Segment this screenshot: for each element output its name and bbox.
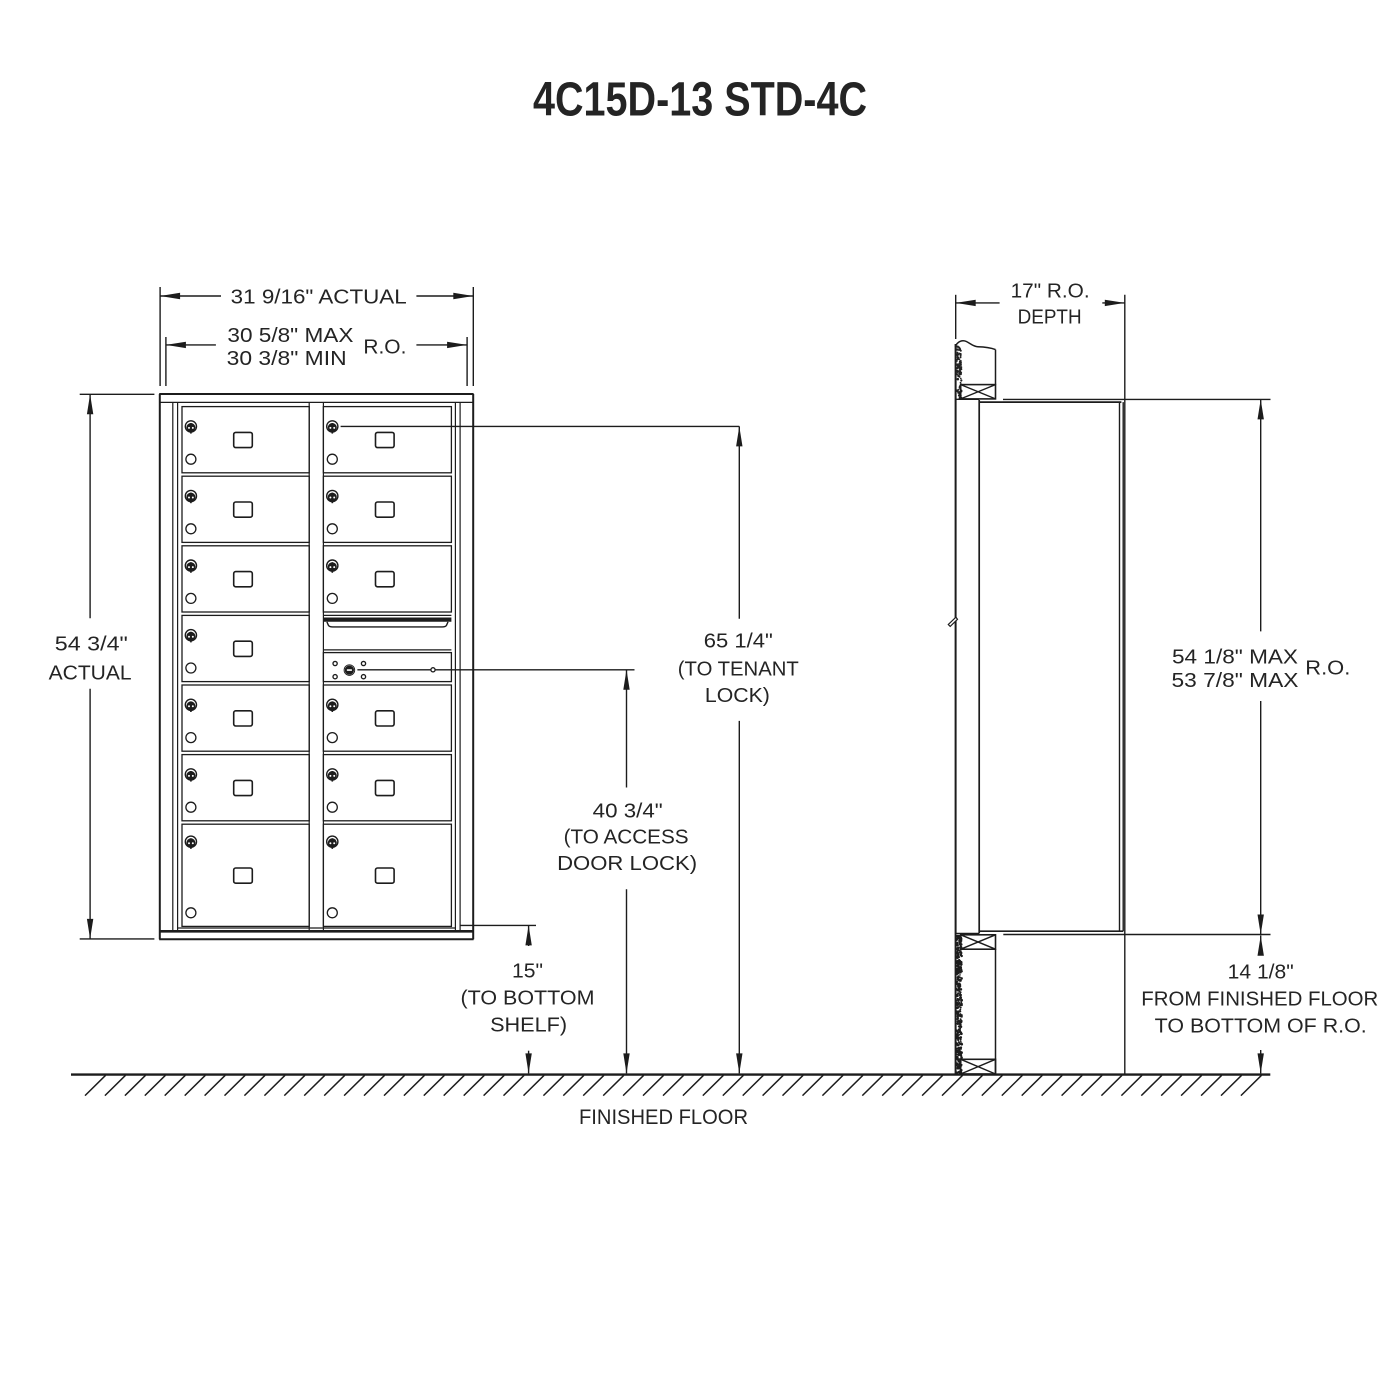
svg-text:30 3/8" MIN: 30 3/8" MIN [227,348,347,370]
svg-text:DEPTH: DEPTH [1018,307,1082,329]
svg-text:(TO BOTTOM: (TO BOTTOM [461,987,595,1009]
svg-text:30 5/8" MAX: 30 5/8" MAX [227,325,353,347]
svg-text:15": 15" [512,961,543,983]
svg-text:ACTUAL: ACTUAL [49,663,132,685]
svg-text:14 1/8": 14 1/8" [1228,962,1294,984]
svg-text:(TO TENANT: (TO TENANT [678,658,799,680]
svg-text:31 9/16" ACTUAL: 31 9/16" ACTUAL [231,286,407,308]
svg-text:TO BOTTOM OF R.O.: TO BOTTOM OF R.O. [1155,1015,1367,1037]
svg-text:4C15D-13 STD-4C: 4C15D-13 STD-4C [533,74,867,127]
svg-text:54 1/8" MAX: 54 1/8" MAX [1172,646,1298,668]
svg-text:FINISHED FLOOR: FINISHED FLOOR [579,1106,748,1129]
svg-text:53 7/8" MAX: 53 7/8" MAX [1172,670,1299,692]
svg-text:DOOR LOCK): DOOR LOCK) [557,853,697,875]
svg-text:R.O.: R.O. [1305,658,1350,680]
svg-text:65 1/4": 65 1/4" [704,630,773,652]
svg-text:SHELF): SHELF) [490,1015,567,1037]
svg-text:FROM FINISHED FLOOR: FROM FINISHED FLOOR [1141,989,1378,1011]
svg-text:LOCK): LOCK) [705,685,770,707]
svg-text:54 3/4": 54 3/4" [55,634,128,656]
svg-text:R.O.: R.O. [363,336,406,358]
svg-text:17" R.O.: 17" R.O. [1011,281,1090,303]
svg-text:40 3/4": 40 3/4" [593,800,663,822]
svg-text:(TO ACCESS: (TO ACCESS [564,826,689,848]
